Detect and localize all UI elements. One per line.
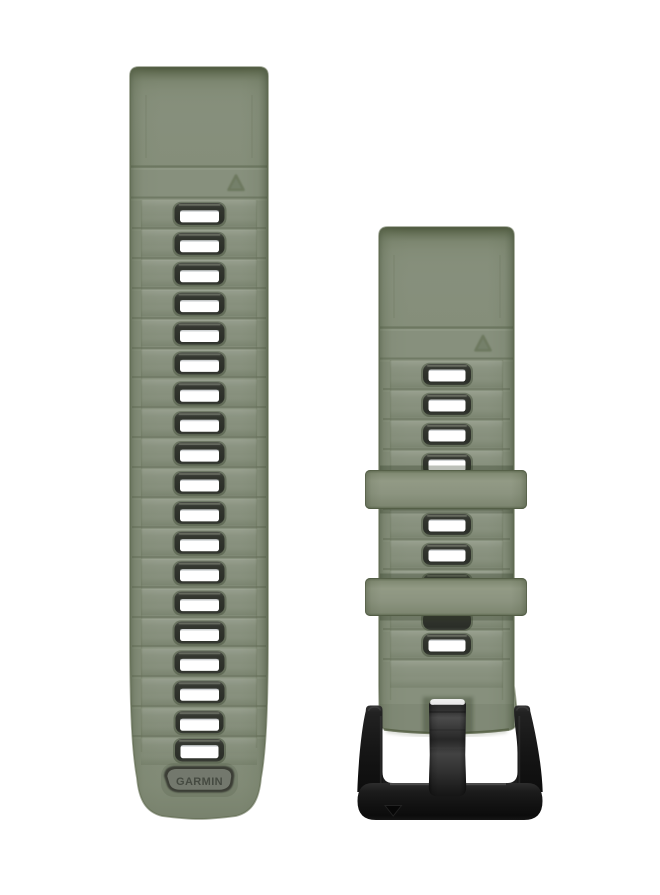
svg-text:GARMIN: GARMIN	[176, 776, 223, 788]
